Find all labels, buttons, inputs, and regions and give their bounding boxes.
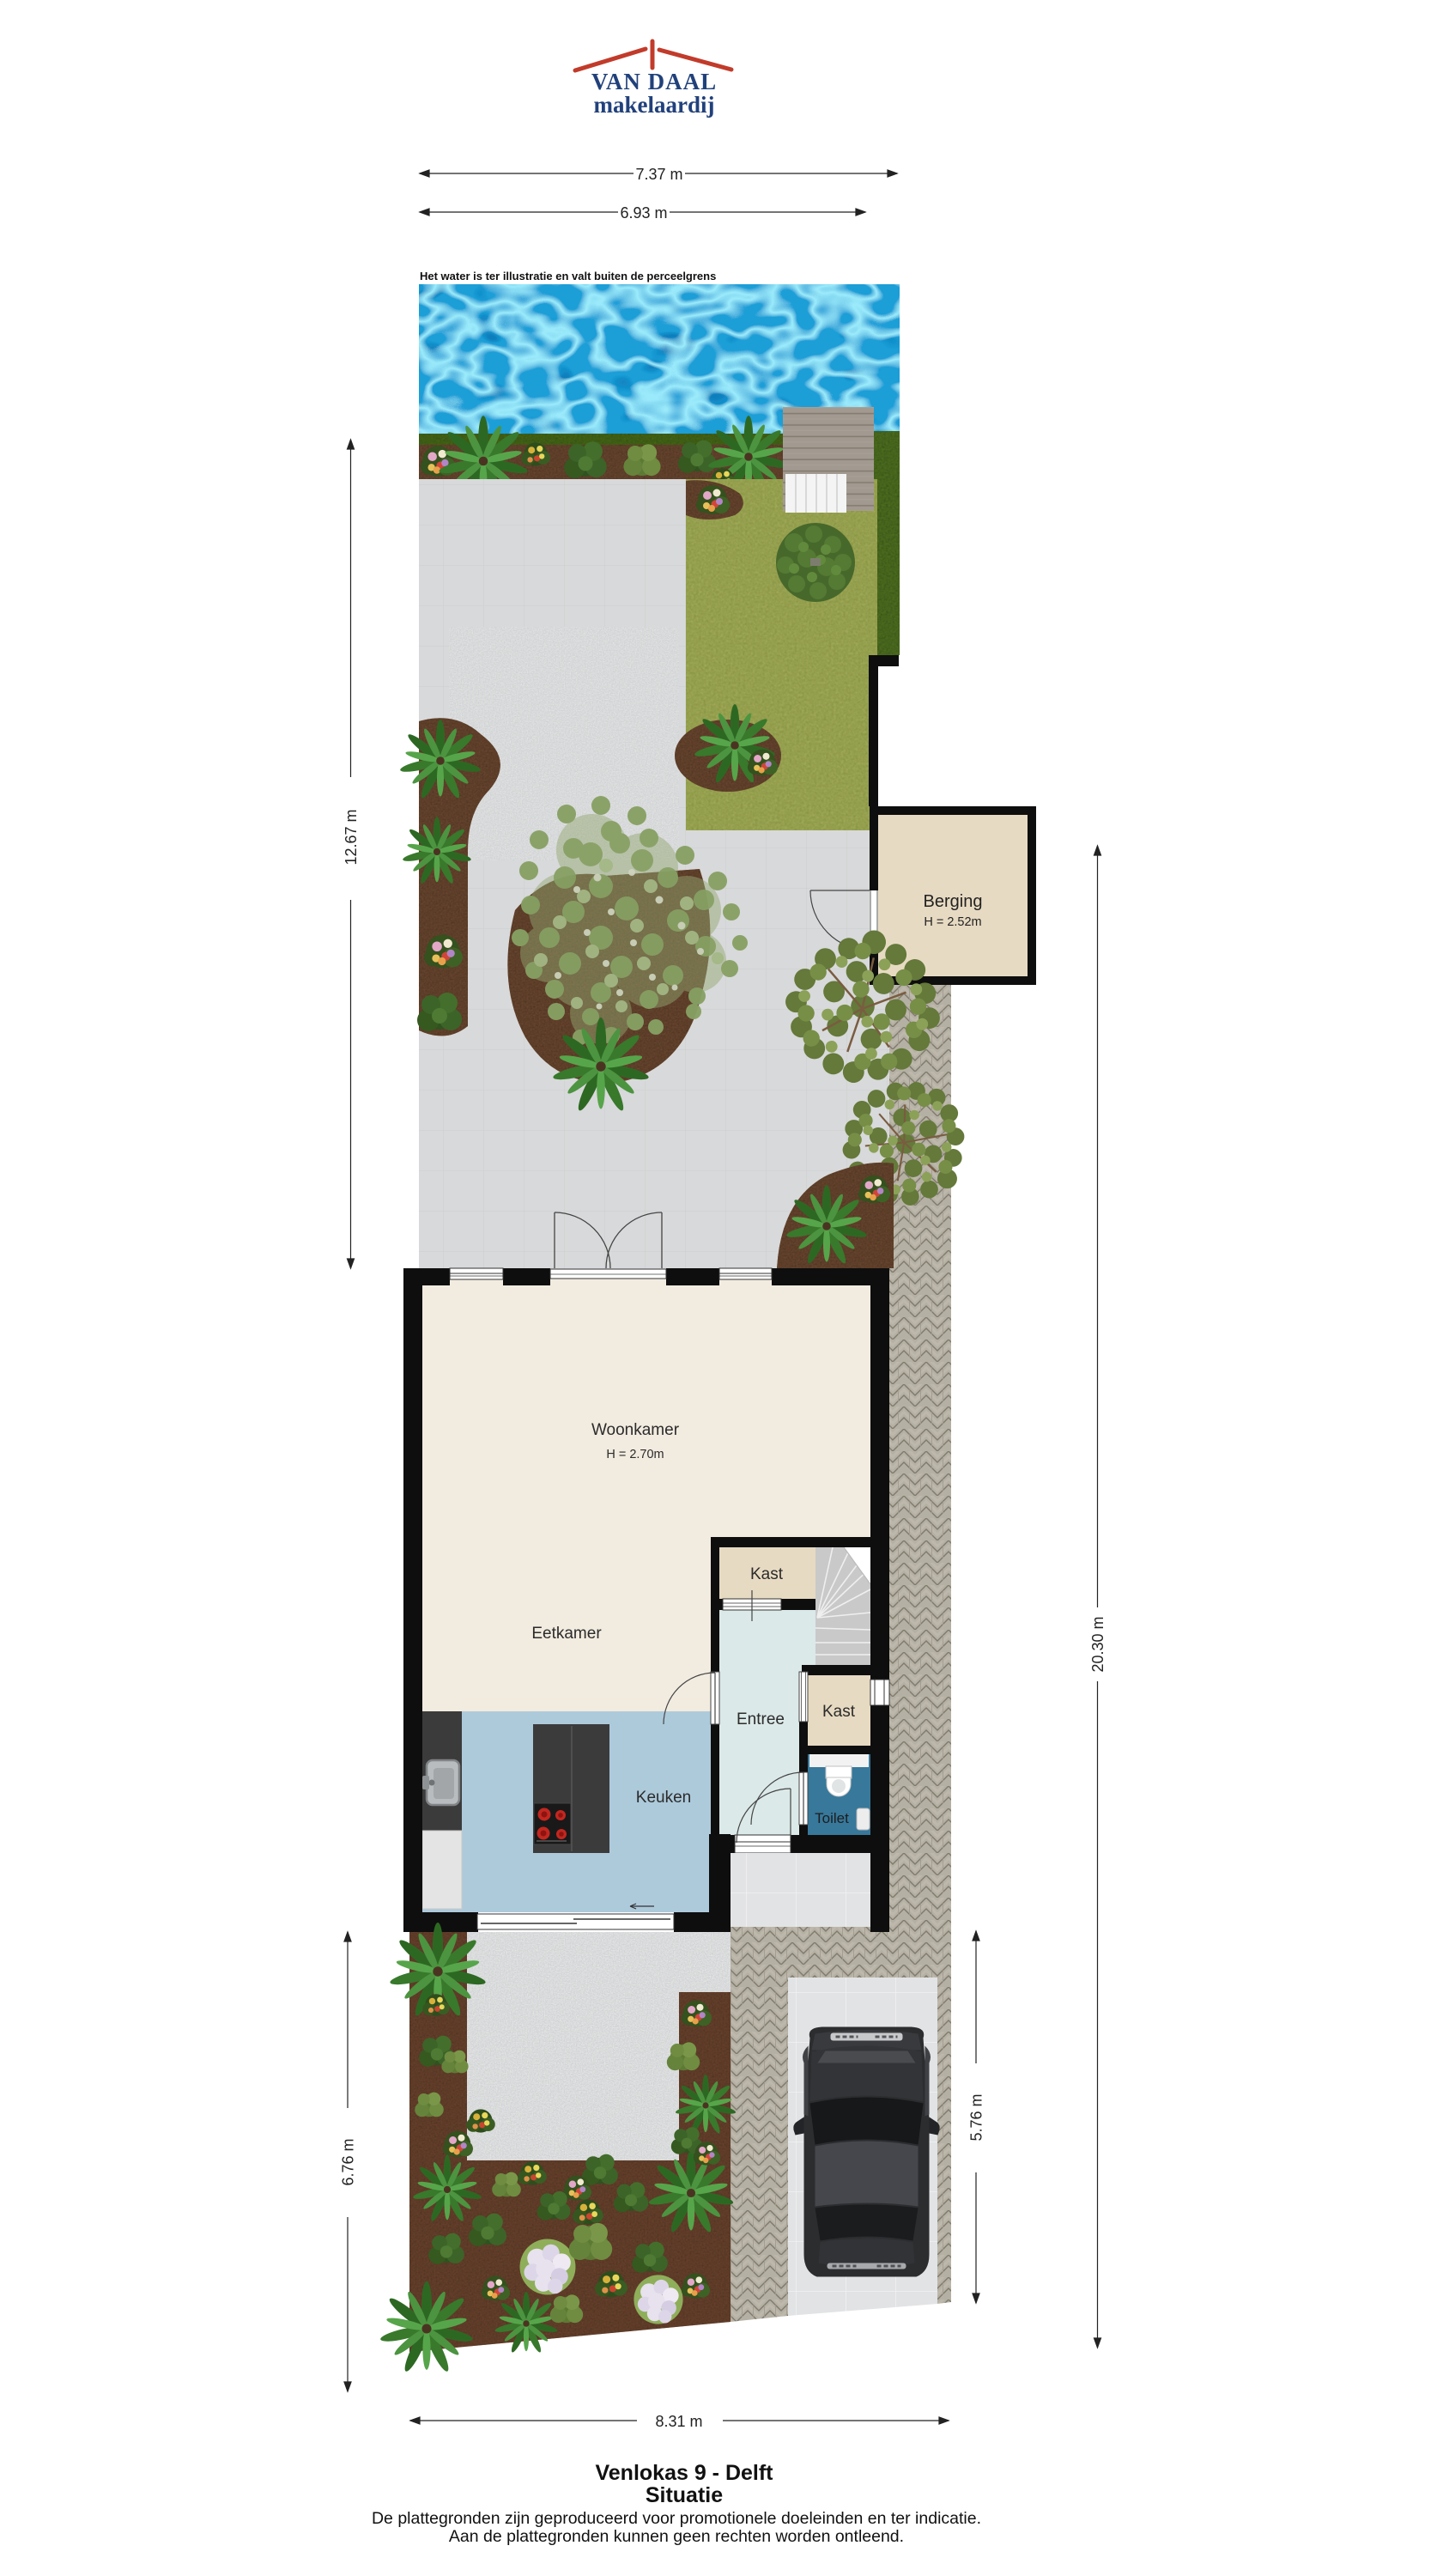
svg-text:Toilet: Toilet xyxy=(815,1810,849,1826)
svg-text:Aan de plattegronden kunnen ge: Aan de plattegronden kunnen geen rechten… xyxy=(449,2527,904,2546)
svg-text:Kast: Kast xyxy=(822,1703,856,1721)
svg-text:Venlokas 9 - Delft: Venlokas 9 - Delft xyxy=(595,2461,773,2485)
svg-text:Eetkamer: Eetkamer xyxy=(531,1625,602,1643)
svg-text:6.76 m: 6.76 m xyxy=(340,2138,357,2185)
svg-text:H = 2.70m: H = 2.70m xyxy=(606,1448,664,1461)
svg-text:Keuken: Keuken xyxy=(636,1789,691,1807)
svg-text:Woonkamer: Woonkamer xyxy=(591,1421,680,1439)
svg-text:Kast: Kast xyxy=(750,1565,784,1583)
svg-text:De plattegronden zijn geproduc: De plattegronden zijn geproduceerd voor … xyxy=(372,2509,981,2528)
svg-text:7.37 m: 7.37 m xyxy=(635,166,682,183)
svg-text:5.76 m: 5.76 m xyxy=(968,2093,985,2141)
svg-text:8.31 m: 8.31 m xyxy=(655,2413,702,2430)
svg-text:Het water is ter illustratie e: Het water is ter illustratie en valt bui… xyxy=(420,270,716,283)
svg-text:6.93 m: 6.93 m xyxy=(620,204,667,222)
svg-text:12.67 m: 12.67 m xyxy=(343,809,360,865)
svg-text:H = 2.52m: H = 2.52m xyxy=(924,915,981,929)
svg-text:VAN DAAL: VAN DAAL xyxy=(591,69,717,94)
svg-text:20.30 m: 20.30 m xyxy=(1089,1616,1106,1672)
svg-text:Situatie: Situatie xyxy=(646,2483,723,2507)
svg-text:Berging: Berging xyxy=(924,892,983,911)
svg-text:makelaardij: makelaardij xyxy=(594,92,715,118)
svg-text:Entree: Entree xyxy=(737,1710,785,1728)
